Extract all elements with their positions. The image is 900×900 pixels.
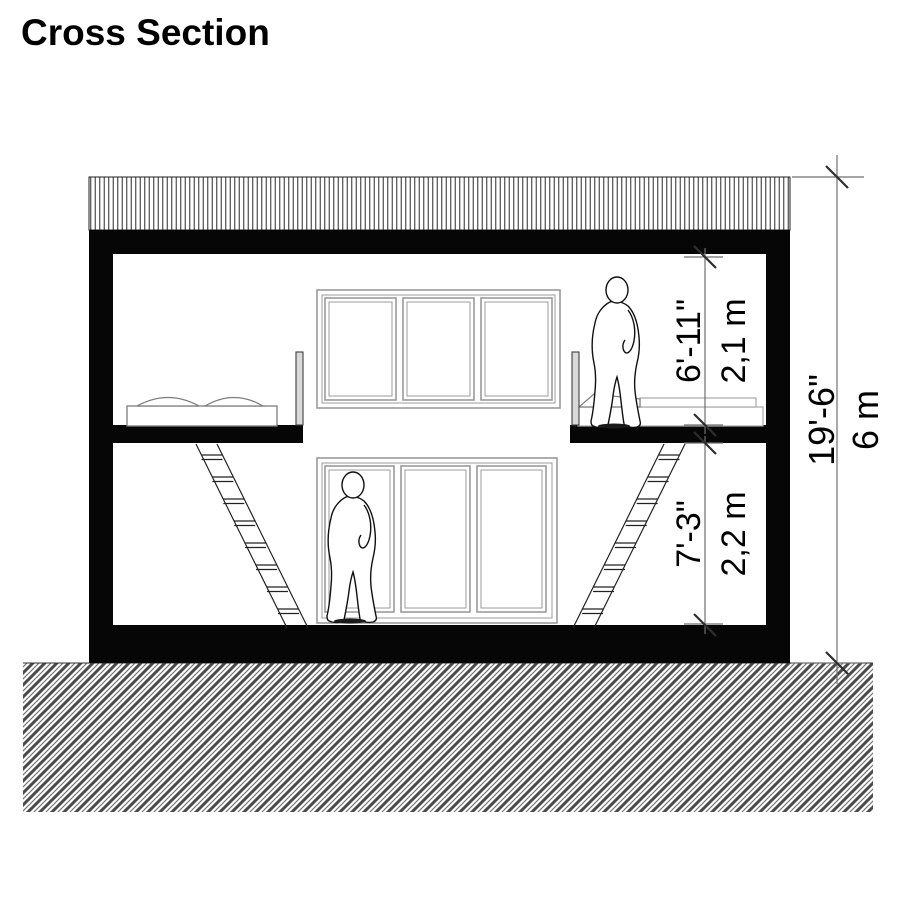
pillow (137, 398, 199, 407)
dim-lower-imperial: 7'-3" (670, 500, 708, 568)
mid-slab-left (113, 425, 303, 443)
ceiling-slab (89, 230, 790, 254)
ladder-rungs (582, 455, 679, 614)
roof (89, 177, 790, 230)
dim-overall-imperial: 19'-6" (801, 374, 842, 466)
dim-upper-imperial: 6'-11" (670, 299, 708, 383)
dim-lower-metric: 2,2 m (715, 491, 753, 576)
ground-hatch (23, 663, 873, 812)
railing-left (296, 352, 303, 425)
wall-right (766, 230, 790, 663)
bottom-slab (113, 625, 766, 663)
railing-right (572, 352, 579, 425)
wall-left (89, 230, 113, 663)
pillow (205, 398, 263, 407)
window-upper (317, 290, 560, 408)
cross-section-drawing: 6'-11" 2,1 m 7'-3" 2,2 m 19'-6" 6 m (0, 0, 900, 900)
dim-overall-metric: 6 m (845, 390, 886, 450)
bed-left (127, 398, 277, 427)
ladder-left (196, 444, 308, 628)
cross-section-page: Cross Section (0, 0, 900, 900)
ladder-right (573, 444, 685, 628)
ladder-rungs (202, 455, 300, 614)
dim-upper-metric: 2,1 m (715, 298, 753, 383)
